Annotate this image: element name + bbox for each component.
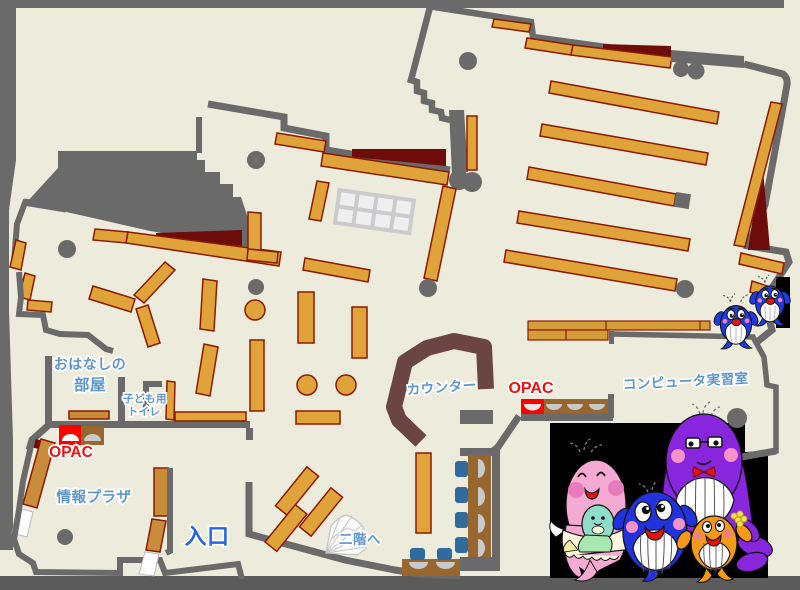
svg-text:子ども用: 子ども用 [123, 392, 167, 405]
svg-text:部屋: 部屋 [74, 375, 106, 394]
svg-text:トイレ: トイレ [128, 406, 161, 418]
svg-text:入口: 入口 [184, 524, 229, 549]
svg-text:おはなしの: おはなしの [54, 356, 127, 372]
svg-text:OPAC: OPAC [508, 380, 553, 397]
svg-text:OPAC: OPAC [49, 444, 93, 461]
svg-text:二階へ: 二階へ [339, 531, 381, 547]
svg-text:情報プラザ: 情報プラザ [57, 488, 132, 506]
